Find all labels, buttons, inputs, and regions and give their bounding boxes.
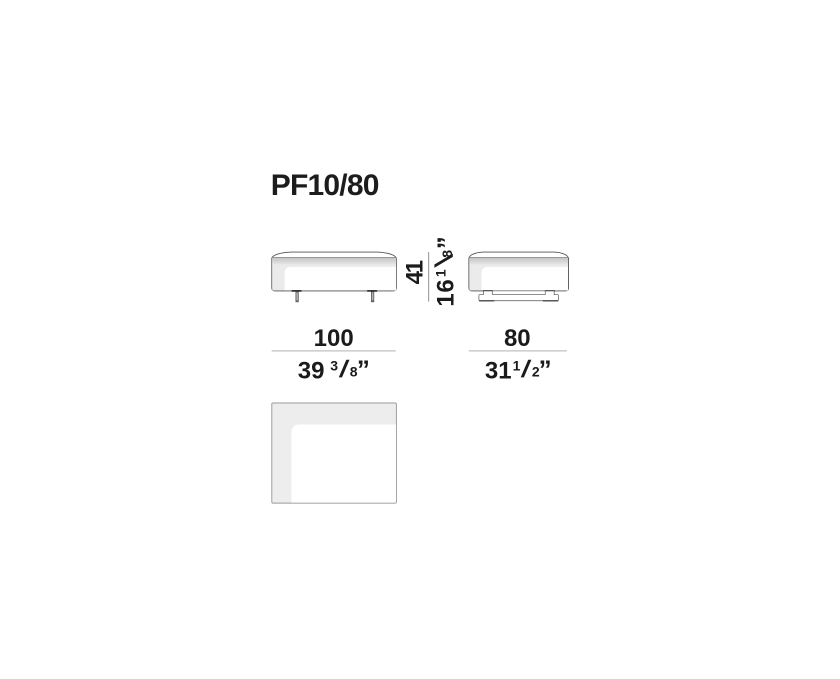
svg-text:1: 1 — [401, 260, 428, 273]
svg-text:3: 3 — [330, 357, 338, 373]
svg-text:1: 1 — [513, 357, 521, 373]
svg-text:”: ” — [431, 236, 461, 249]
svg-text:6: 6 — [432, 279, 459, 292]
svg-text:8: 8 — [439, 250, 455, 258]
svg-text:39: 39 — [298, 358, 325, 385]
svg-text:31: 31 — [485, 358, 512, 385]
svg-text:1: 1 — [432, 293, 459, 306]
svg-text:”: ” — [539, 355, 552, 385]
svg-text:PF10/80: PF10/80 — [271, 169, 379, 202]
svg-text:”: ” — [357, 355, 370, 385]
svg-text:1: 1 — [432, 269, 448, 277]
svg-text:100: 100 — [314, 325, 354, 352]
svg-text:80: 80 — [504, 325, 531, 352]
